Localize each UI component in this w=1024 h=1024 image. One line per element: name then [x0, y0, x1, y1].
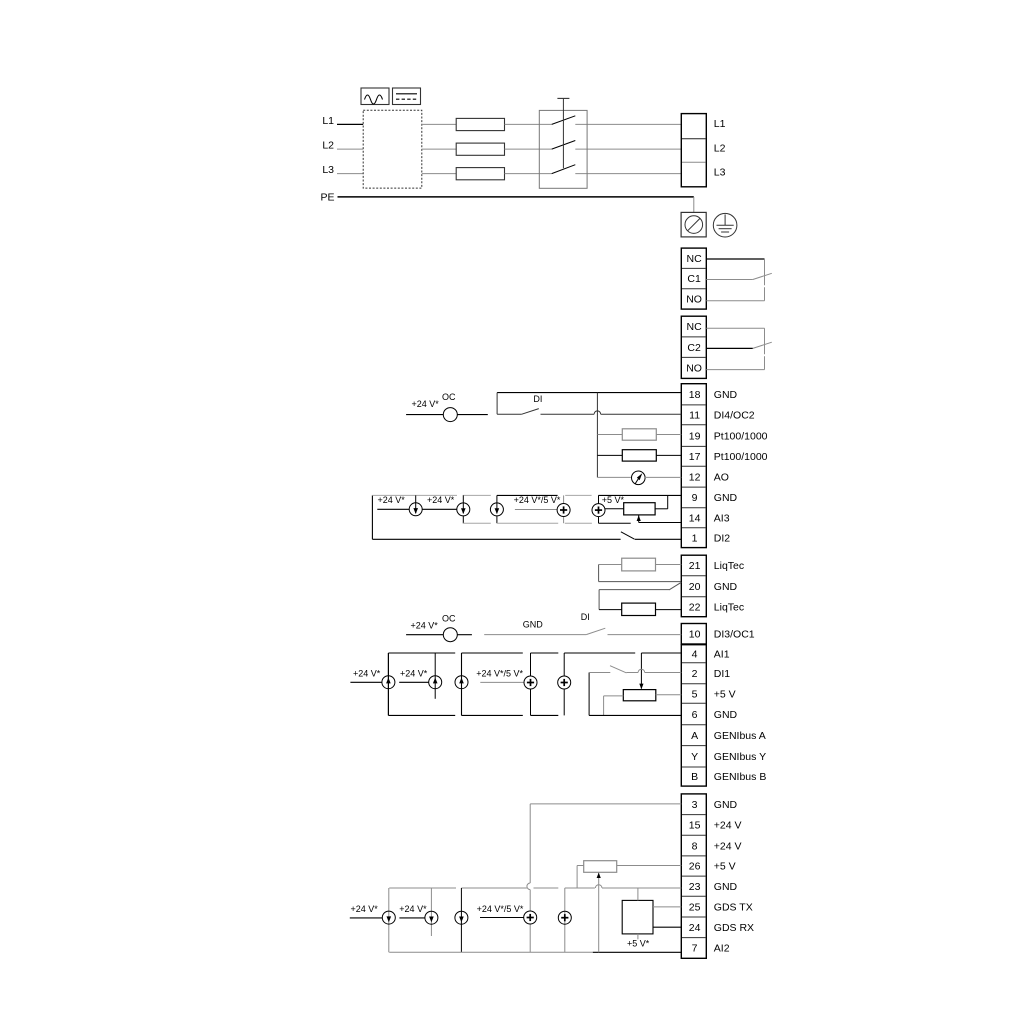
svg-text:1: 1	[692, 532, 698, 544]
svg-text:GENIbus Y: GENIbus Y	[714, 751, 766, 763]
svg-text:DI3/OC1: DI3/OC1	[714, 629, 755, 641]
svg-text:7: 7	[692, 943, 698, 955]
svg-text:GND: GND	[714, 492, 738, 504]
svg-text:23: 23	[689, 881, 701, 893]
svg-text:+24 V*/5 V*: +24 V*/5 V*	[476, 669, 523, 679]
svg-text:Pt100/1000: Pt100/1000	[714, 451, 768, 463]
svg-text:+5 V: +5 V	[714, 861, 736, 873]
svg-text:12: 12	[689, 471, 701, 483]
svg-text:L2: L2	[322, 140, 334, 152]
svg-text:+5 V*: +5 V*	[627, 938, 650, 948]
svg-text:C2: C2	[687, 342, 701, 354]
svg-text:GND: GND	[714, 389, 738, 401]
svg-text:AI3: AI3	[714, 513, 730, 525]
svg-text:20: 20	[689, 581, 701, 593]
svg-text:L2: L2	[714, 143, 726, 155]
svg-text:+24 V*: +24 V*	[351, 904, 379, 914]
svg-text:GND: GND	[714, 799, 738, 811]
svg-text:24: 24	[689, 922, 701, 934]
svg-text:DI: DI	[581, 612, 590, 622]
svg-text:L3: L3	[714, 167, 726, 179]
svg-text:15: 15	[689, 820, 701, 832]
svg-text:17: 17	[689, 451, 701, 463]
svg-text:21: 21	[689, 560, 701, 572]
svg-text:25: 25	[689, 901, 701, 913]
svg-text:5: 5	[692, 688, 698, 700]
svg-text:+24 V: +24 V	[714, 820, 742, 832]
svg-text:3: 3	[692, 799, 698, 811]
svg-text:8: 8	[692, 840, 698, 852]
svg-text:14: 14	[689, 513, 701, 525]
svg-text:AO: AO	[714, 471, 729, 483]
svg-text:L1: L1	[714, 118, 726, 130]
svg-text:NC: NC	[687, 253, 703, 265]
svg-text:GND: GND	[714, 881, 738, 893]
svg-text:GENIbus B: GENIbus B	[714, 771, 767, 783]
svg-text:B: B	[691, 771, 698, 783]
svg-text:+24 V*: +24 V*	[400, 669, 428, 679]
svg-text:+24 V*/5 V*: +24 V*/5 V*	[477, 904, 524, 914]
svg-text:LiqTec: LiqTec	[714, 602, 744, 614]
svg-text:11: 11	[689, 410, 700, 422]
svg-text:OC: OC	[442, 392, 456, 402]
svg-text:GND: GND	[714, 581, 738, 593]
svg-text:AI2: AI2	[714, 943, 730, 955]
svg-text:+24 V*: +24 V*	[353, 669, 381, 679]
svg-text:GDS TX: GDS TX	[714, 901, 753, 913]
svg-text:DI2: DI2	[714, 532, 731, 544]
svg-text:Pt100/1000: Pt100/1000	[714, 430, 768, 442]
svg-text:9: 9	[692, 492, 698, 504]
svg-text:GDS RX: GDS RX	[714, 922, 754, 934]
svg-text:GND: GND	[714, 709, 738, 721]
svg-text:+5 V: +5 V	[714, 688, 736, 700]
svg-text:NO: NO	[686, 363, 702, 375]
svg-text:NC: NC	[687, 321, 703, 333]
svg-text:26: 26	[689, 861, 701, 873]
svg-text:10: 10	[689, 629, 701, 641]
svg-text:+24 V*: +24 V*	[399, 904, 427, 914]
svg-text:GENIbus A: GENIbus A	[714, 730, 766, 742]
svg-text:+24 V*: +24 V*	[412, 399, 440, 409]
svg-text:19: 19	[689, 430, 701, 442]
svg-text:L3: L3	[322, 164, 334, 176]
svg-text:L1: L1	[322, 115, 334, 127]
svg-text:6: 6	[692, 709, 698, 721]
svg-text:A: A	[691, 730, 698, 742]
svg-text:AI1: AI1	[714, 649, 730, 661]
svg-text:+24 V*/5 V*: +24 V*/5 V*	[514, 495, 561, 505]
svg-text:4: 4	[692, 649, 698, 661]
svg-text:+24 V*: +24 V*	[378, 495, 406, 505]
svg-text:DI: DI	[533, 394, 542, 404]
svg-text:+24 V*: +24 V*	[411, 620, 439, 630]
svg-text:DI4/OC2: DI4/OC2	[714, 410, 755, 422]
svg-text:LiqTec: LiqTec	[714, 560, 744, 572]
svg-text:C1: C1	[687, 273, 701, 285]
svg-text:NO: NO	[686, 294, 702, 306]
svg-text:22: 22	[689, 602, 701, 614]
svg-text:18: 18	[689, 389, 701, 401]
svg-text:+24 V: +24 V	[714, 840, 742, 852]
svg-text:GND: GND	[523, 619, 544, 629]
svg-text:DI1: DI1	[714, 668, 731, 680]
svg-text:OC: OC	[442, 613, 456, 623]
svg-text:PE: PE	[320, 192, 334, 204]
svg-text:Y: Y	[691, 751, 698, 763]
svg-text:2: 2	[692, 668, 698, 680]
svg-text:+5 V*: +5 V*	[602, 495, 625, 505]
svg-text:+24 V*: +24 V*	[427, 495, 455, 505]
